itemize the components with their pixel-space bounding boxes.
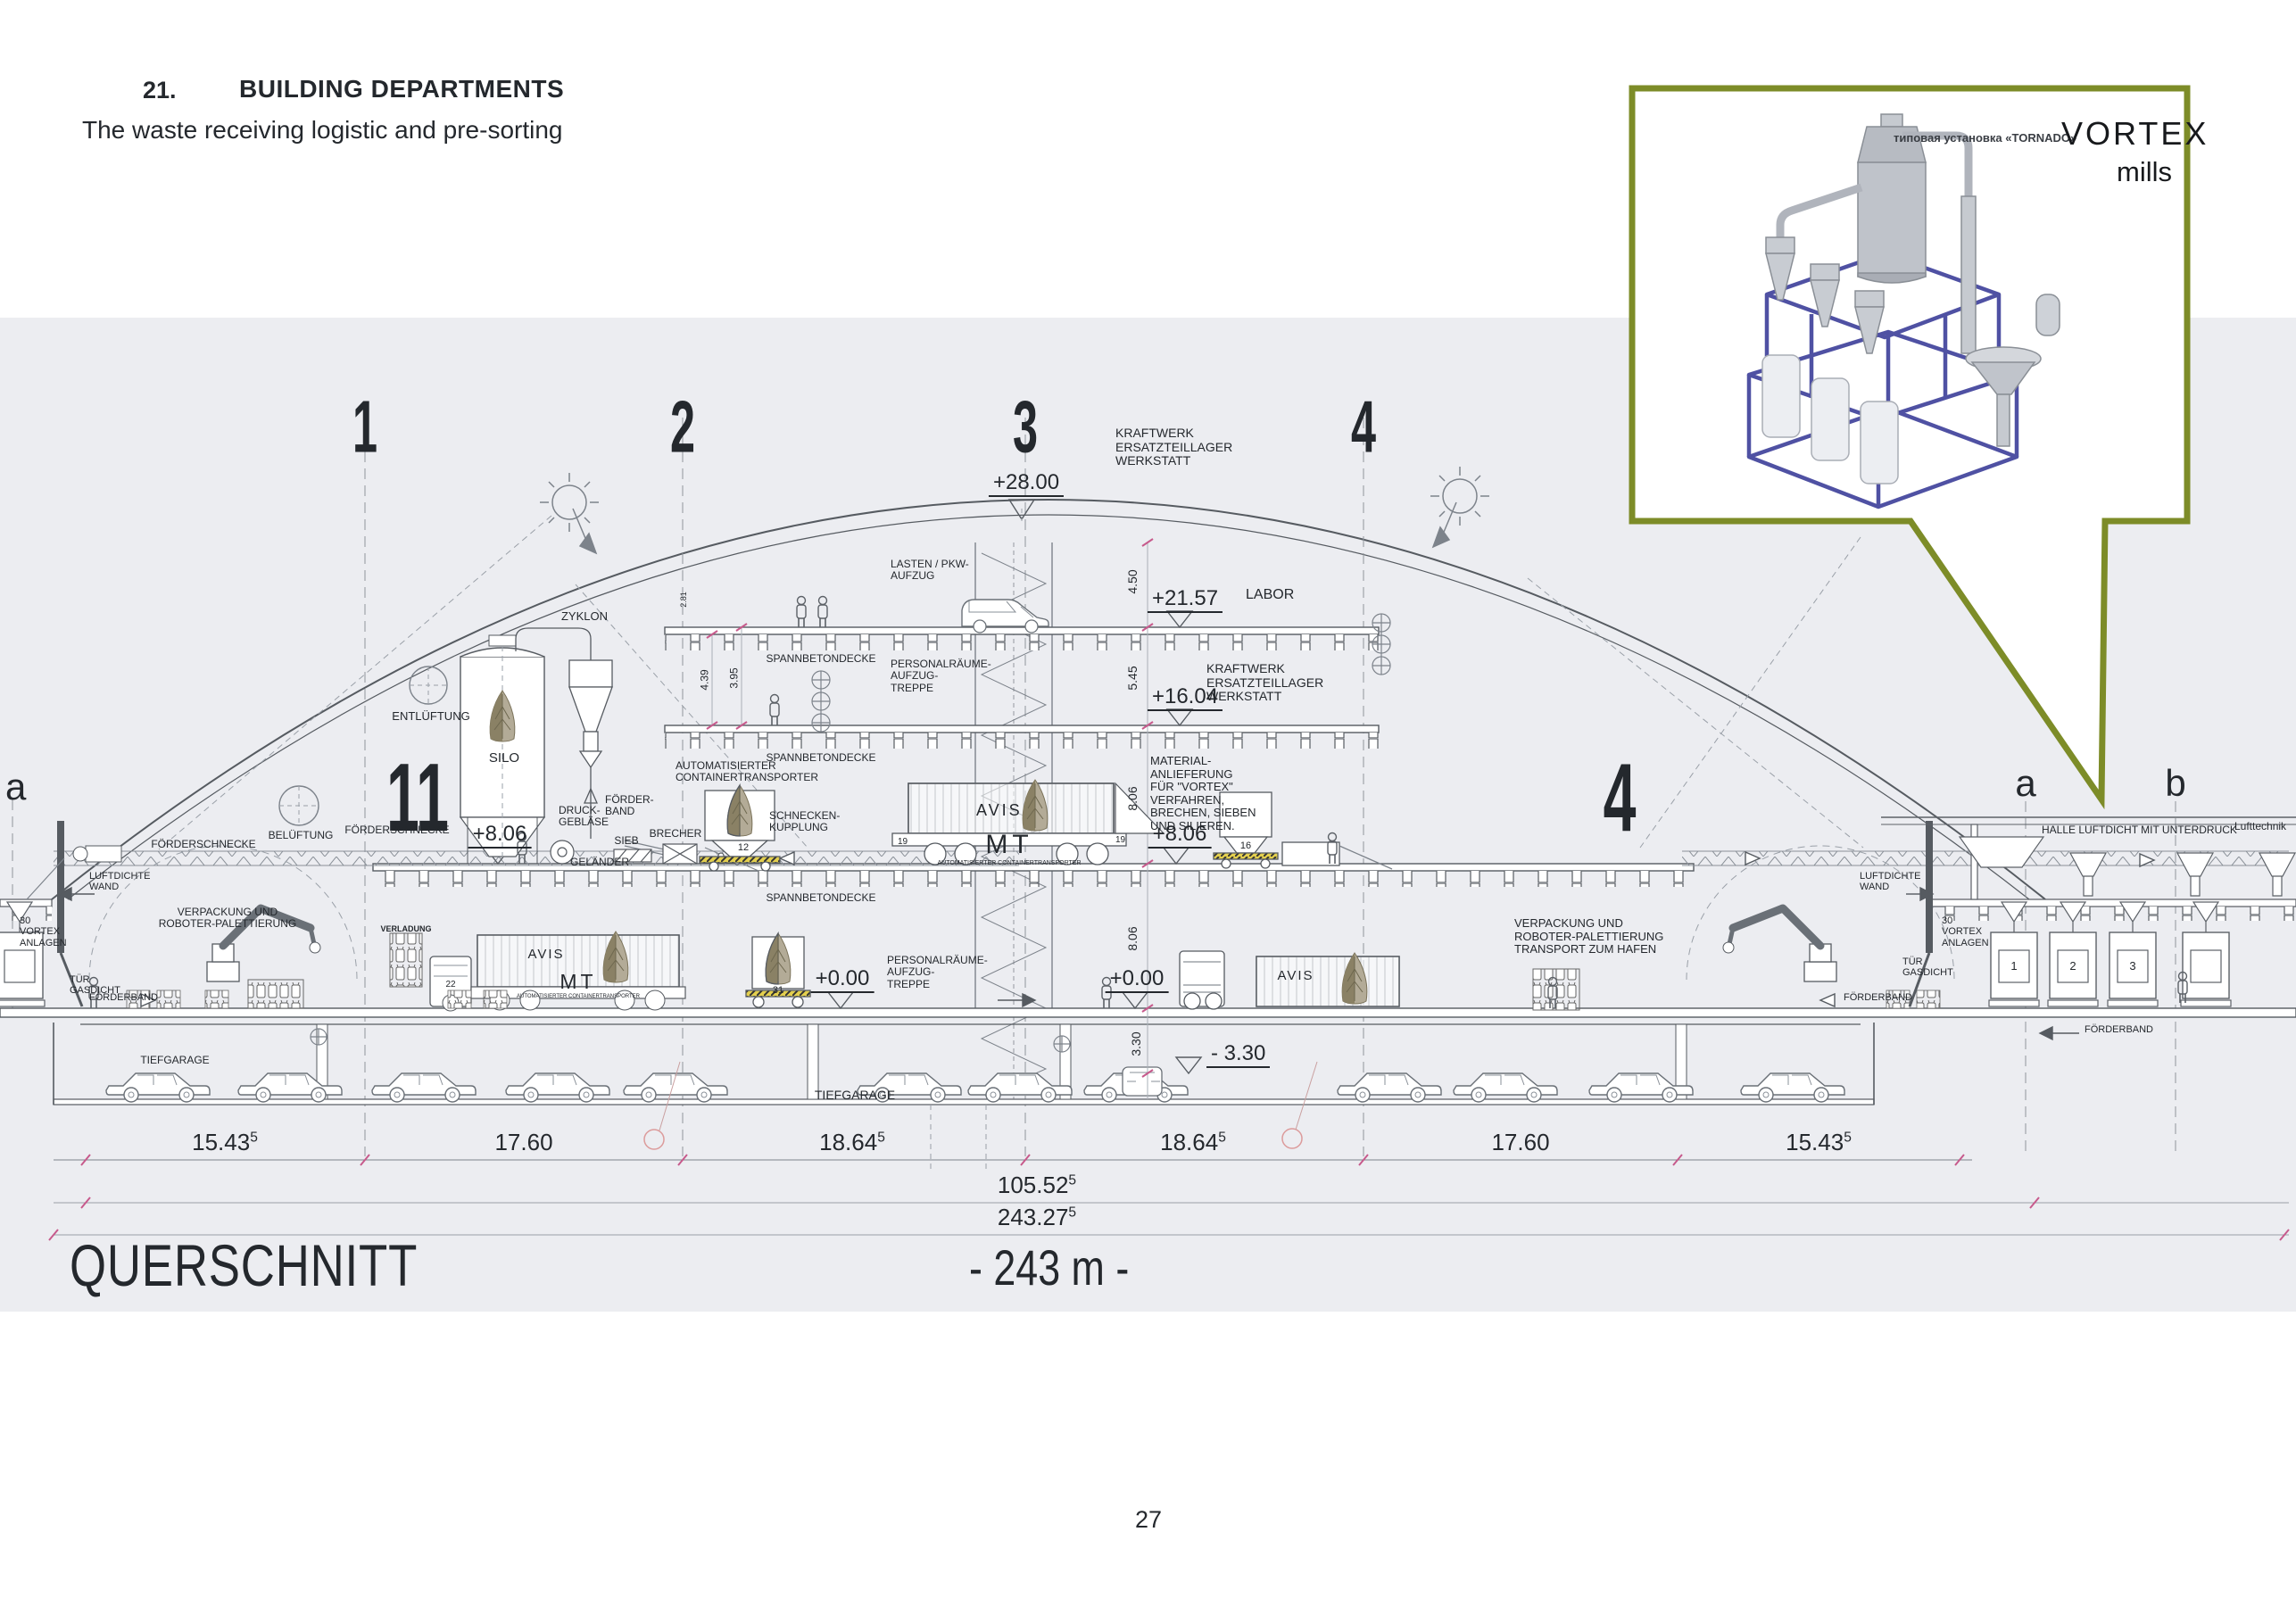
grid-number-3: 3	[1013, 385, 1038, 468]
truck-avis-ground: AVIS	[527, 948, 564, 963]
page-subtitle: The waste receiving logistic and pre-sor…	[82, 116, 562, 144]
truck-mt-sub-upper: AUTOMATISIERTER CONTAINERTRANSPORTER	[937, 860, 1081, 867]
label-schneckenkupplung: SCHNECKEN- KUPPLUNG	[769, 810, 840, 834]
label-belueftung: BELÜFTUNG	[269, 830, 334, 841]
label-halle-luftdicht: HALLE LUFTDICHT MIT UNTERDRUCK	[2042, 824, 2237, 836]
label-gelaender: GELÄNDER	[570, 857, 629, 868]
height-395: 3.95	[728, 667, 740, 688]
label-brecher: BRECHER	[650, 828, 702, 840]
label-tiefgarage-left: TIEFGARAGE	[140, 1055, 209, 1066]
dim-3: 18.645	[819, 1130, 885, 1155]
dim-6: 15.435	[1786, 1130, 1852, 1155]
level-ground-left: +0.00	[811, 967, 874, 991]
vortex-unit-3: 3	[2129, 960, 2135, 973]
label-zyklon: ZYKLON	[561, 610, 608, 624]
text-layer: 21. BUILDING DEPARTMENTS The waste recei…	[0, 0, 2296, 1623]
vehicle-id-22: 22	[445, 980, 455, 990]
label-foerderband-2line: FÖRDER- BAND	[605, 794, 654, 818]
truck-avis-upper: AVIS	[976, 801, 1023, 819]
label-tiefgarage-center: TIEFGARAGE	[815, 1089, 895, 1103]
dim-5: 17.60	[1491, 1130, 1549, 1155]
label-autotransporter: AUTOMATISIERTER CONTAINERTRANSPORTER	[676, 760, 818, 784]
grid-number-4: 4	[1351, 385, 1376, 468]
dim-subtotal: 105.525	[998, 1172, 1076, 1198]
section-number: 21.	[143, 77, 177, 104]
total-span-label: - 243 m -	[969, 1240, 1129, 1296]
label-lasten-aufzug: LASTEN / PKW- AUFZUG	[891, 559, 969, 583]
grid-letter-a: a	[2015, 762, 2035, 804]
label-verladung: VERLADUNG	[380, 924, 431, 933]
dim-2: 17.60	[494, 1130, 552, 1155]
label-druckgeblaese: DRUCK- GEBLÄSE	[559, 805, 609, 829]
height-450: 4.50	[1126, 569, 1140, 593]
vortex-unit-1: 1	[2010, 960, 2017, 973]
grid-number-1: 1	[352, 385, 377, 468]
page-number: 27	[1135, 1506, 1162, 1533]
container-id-16: 16	[1240, 840, 1251, 851]
level-roof: +28.00	[989, 471, 1064, 495]
label-silo: SILO	[489, 751, 519, 766]
label-foerderband-right: FÖRDERBAND	[1844, 992, 1912, 1003]
level-f3: +21.57	[1148, 587, 1223, 611]
container-id-31: 31	[773, 985, 783, 996]
height-330: 3.30	[1130, 1031, 1144, 1056]
label-sieb: SIEB	[614, 835, 638, 847]
page-title: BUILDING DEPARTMENTS	[239, 75, 564, 103]
label-foerderband-left: FÖRDERBAND	[89, 992, 158, 1003]
label-tuer-gasdicht-right: TÜR GASDICHT	[1902, 956, 1953, 979]
label-personal-2: PERSONALRÄUME- AUFZUG- TREPPE	[887, 955, 988, 990]
label-verpackung-hafen: VERPACKUNG UND ROBOTER-PALETTIERUNG TRAN…	[1514, 917, 1663, 956]
bay-number-4: 4	[1604, 744, 1637, 853]
dim-total: 243.275	[998, 1205, 1076, 1230]
truck-mt-sub-ground: AUTOMATISIERTER CONTAINERTRANSPORTER	[517, 994, 640, 1000]
container-avis-right: AVIS	[1277, 969, 1314, 984]
label-foerderschnecke-2: FÖRDERSCHNECKE	[344, 824, 449, 836]
label-foerderschnecke-1: FÖRDERSCHNECKE	[151, 839, 255, 850]
label-spannbeton-1: SPANNBETONDECKE	[767, 653, 876, 665]
grid-letter-b: b	[2165, 762, 2185, 804]
label-lufttechnik: Lufttechnik	[2234, 821, 2286, 832]
vortex-unit-2: 2	[2069, 960, 2076, 973]
level-basement: - 3.30	[1206, 1042, 1270, 1066]
grid-letter-a-left: a	[5, 766, 26, 807]
label-personal-1: PERSONALRÄUME- AUFZUG- TREPPE	[891, 658, 991, 694]
wheel-id-right: 19	[1115, 835, 1125, 845]
height-281: 2.81	[679, 592, 688, 608]
level-f1-left: +8.06	[468, 823, 532, 847]
label-kraftwerk-mid: KRAFTWERK ERSATZTEILLAGER WERKSTATT	[1206, 662, 1323, 704]
height-806-lower: 8.06	[1126, 926, 1140, 950]
label-material: MATERIAL- ANLIEFERUNG FÜR "VORTEX" VERFA…	[1150, 755, 1256, 832]
wheel-id-left: 19	[898, 837, 908, 847]
inset-brand: VORTEX	[2061, 116, 2209, 152]
label-kraftwerk-top: KRAFTWERK ERSATZTEILLAGER WERKSTATT	[1115, 426, 1232, 468]
label-luftdichte-wand-right: LUFTDICHTE WAND	[1860, 871, 1920, 893]
height-545: 5.45	[1126, 666, 1140, 690]
label-vortex-anlagen-left: 30 VORTEX ANLAGEN	[20, 915, 67, 948]
label-spannbeton-3: SPANNBETONDECKE	[767, 892, 876, 904]
inset-caption: типовая установка «TORNADO»	[1894, 132, 2076, 145]
label-verpackung-left: VERPACKUNG UND ROBOTER-PALETTIERUNG	[159, 907, 296, 931]
dim-1: 15.435	[192, 1130, 258, 1155]
inset-brand-sub: mills	[2117, 157, 2172, 188]
grid-number-2: 2	[670, 385, 695, 468]
drawing-title: QUERSCHNITT	[70, 1233, 418, 1299]
label-luftdichte-wand-left: LUFTDICHTE WAND	[89, 871, 150, 893]
dim-4: 18.645	[1160, 1130, 1226, 1155]
label-labor: LABOR	[1246, 587, 1294, 603]
container-id-12: 12	[738, 842, 749, 853]
label-entlueftung: ENTLÜFTUNG	[392, 710, 469, 724]
document-page: 21. BUILDING DEPARTMENTS The waste recei…	[0, 0, 2296, 1623]
height-439: 4.39	[699, 669, 710, 690]
height-806-upper: 8.06	[1126, 786, 1140, 810]
label-vortex-anlagen-right: 30 VORTEX ANLAGEN	[1942, 915, 1989, 948]
level-ground-right: +0.00	[1106, 967, 1169, 991]
truck-mt-ground: MT	[559, 971, 596, 994]
truck-mt-upper: MT	[985, 830, 1032, 860]
label-foerderband-bottom: FÖRDERBAND	[2085, 1024, 2153, 1035]
